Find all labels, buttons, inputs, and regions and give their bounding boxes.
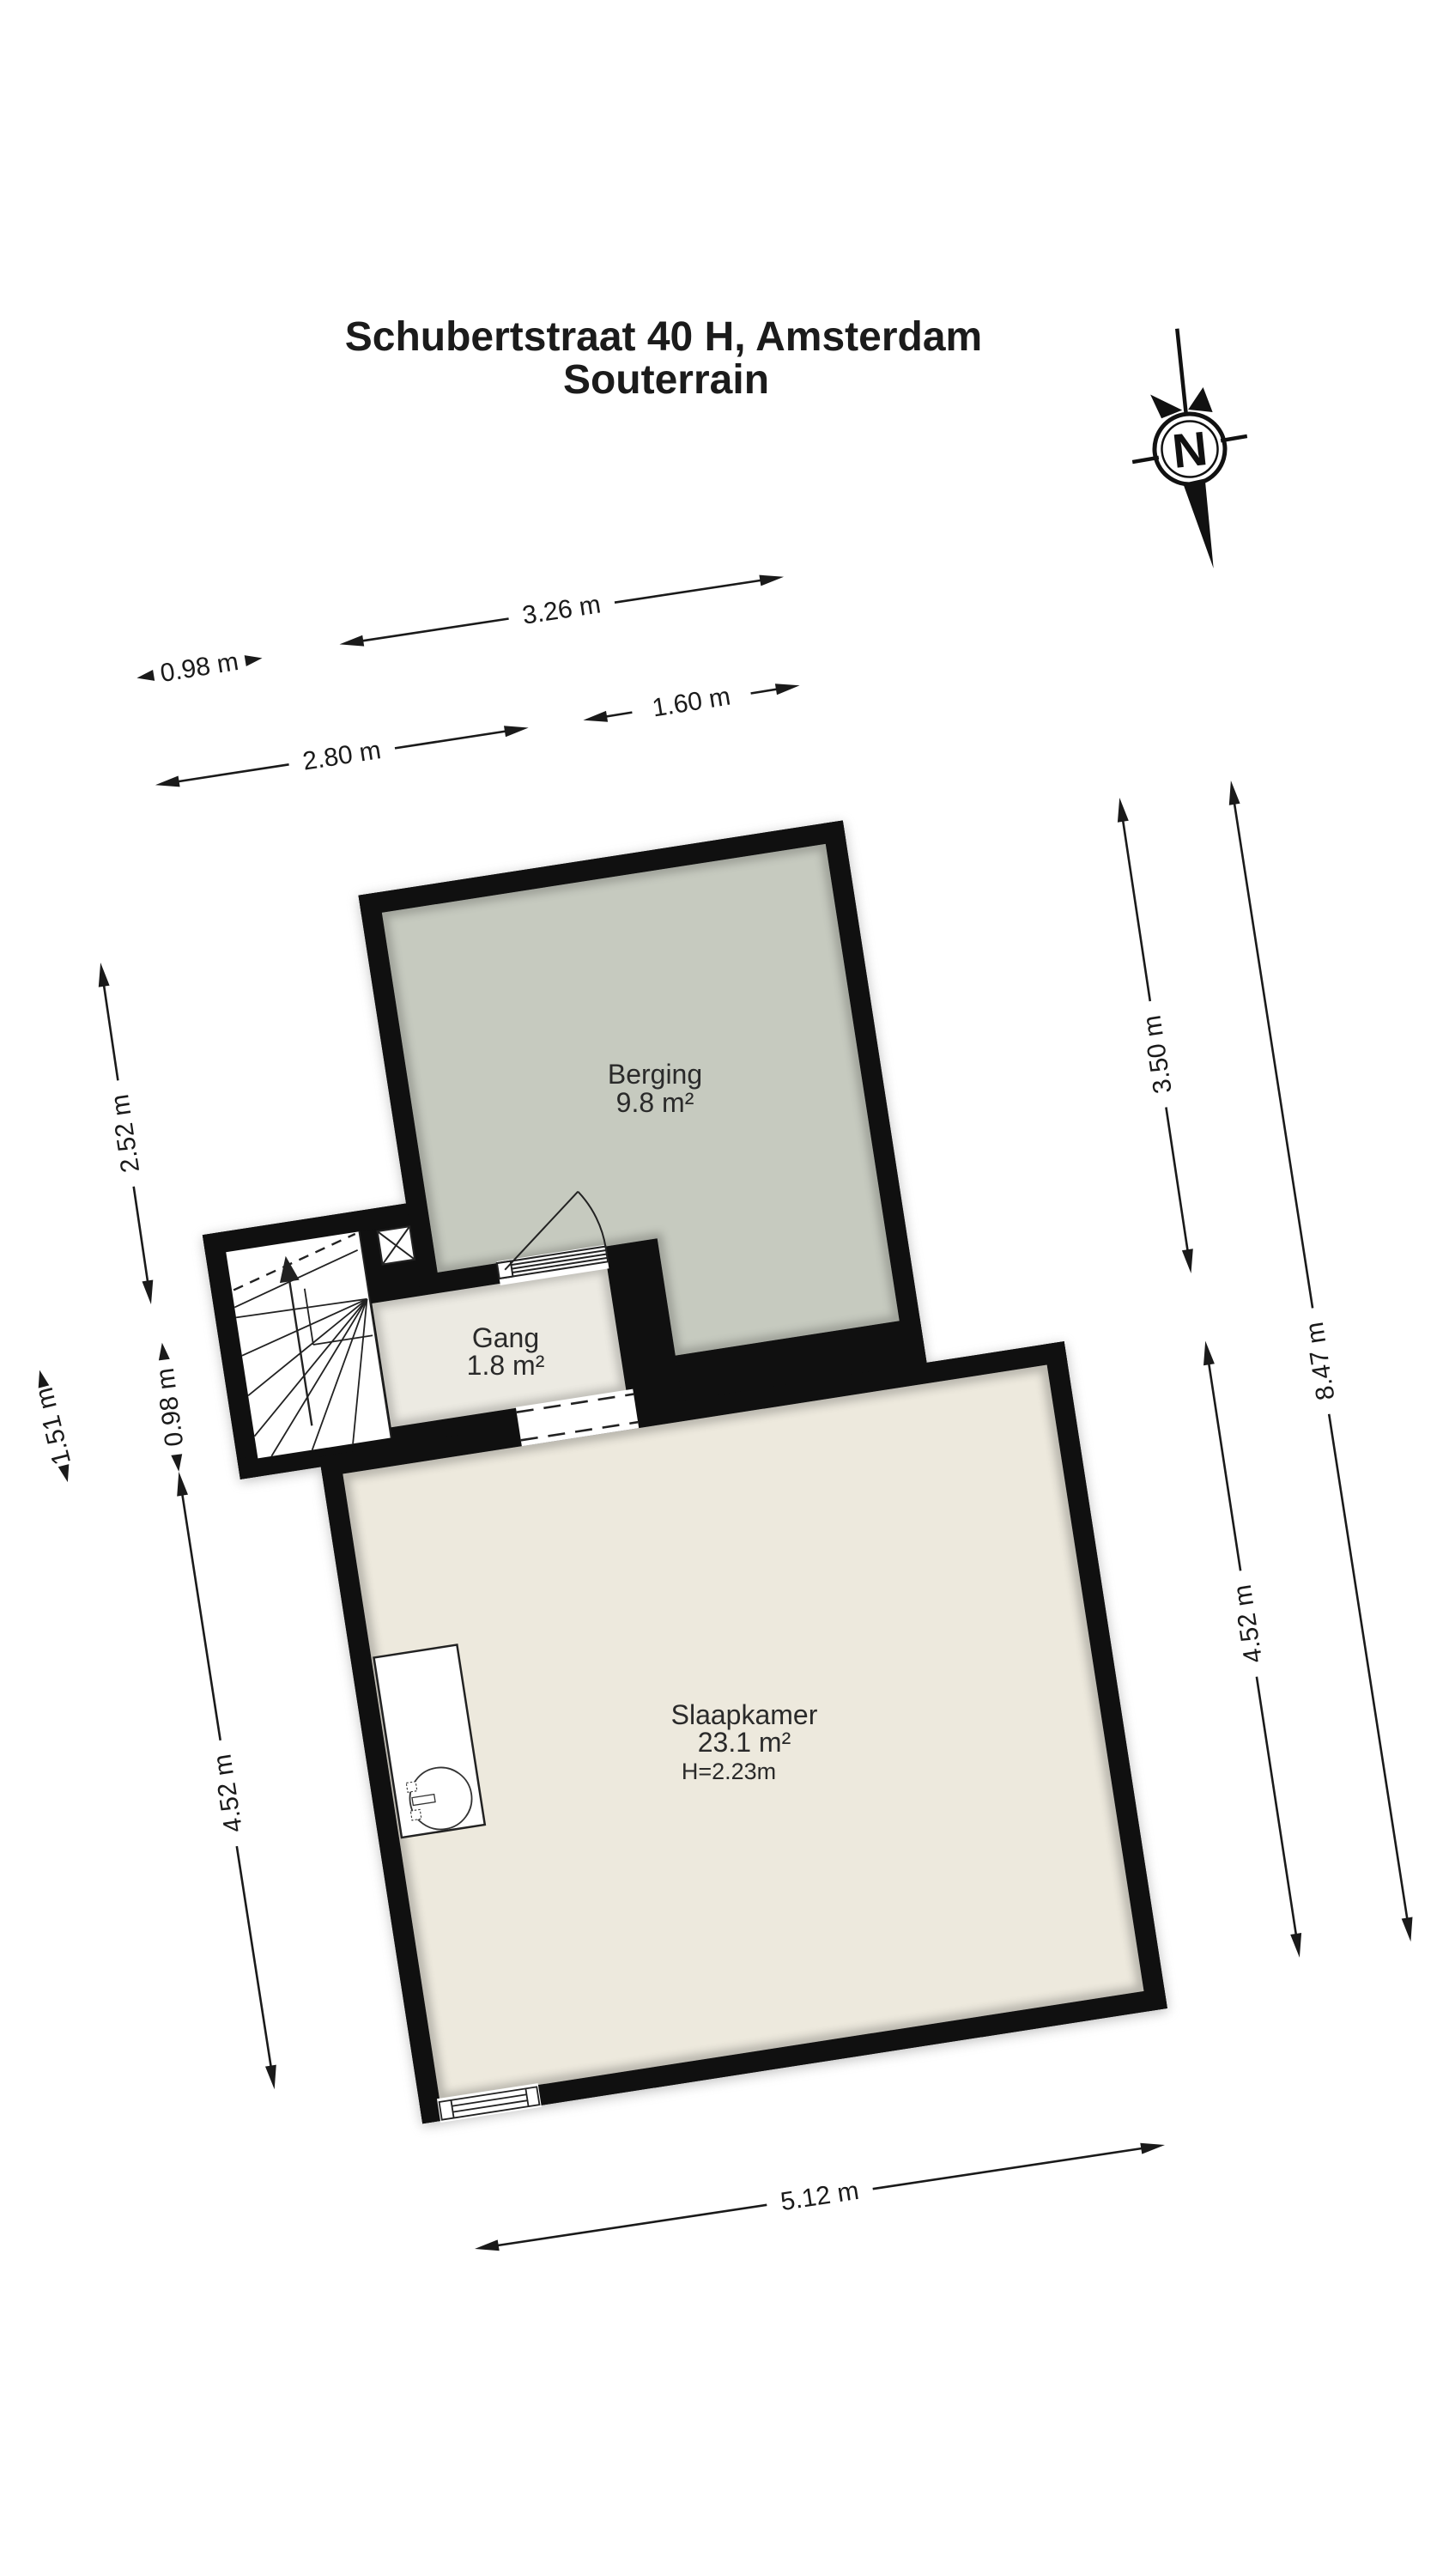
svg-text:H=2.23m: H=2.23m: [682, 1759, 776, 1784]
svg-text:Gang: Gang: [472, 1322, 539, 1353]
svg-text:Berging: Berging: [608, 1059, 702, 1090]
svg-text:9.8 m²: 9.8 m²: [616, 1087, 694, 1118]
svg-text:23.1 m²: 23.1 m²: [698, 1727, 791, 1758]
svg-text:Slaapkamer: Slaapkamer: [671, 1699, 818, 1730]
svg-text:Souterrain: Souterrain: [563, 357, 769, 403]
svg-text:1.8 m²: 1.8 m²: [467, 1350, 545, 1381]
svg-text:Schubertstraat 40 H, Amsterdam: Schubertstraat 40 H, Amsterdam: [345, 314, 982, 360]
svg-text:N: N: [1170, 421, 1210, 478]
